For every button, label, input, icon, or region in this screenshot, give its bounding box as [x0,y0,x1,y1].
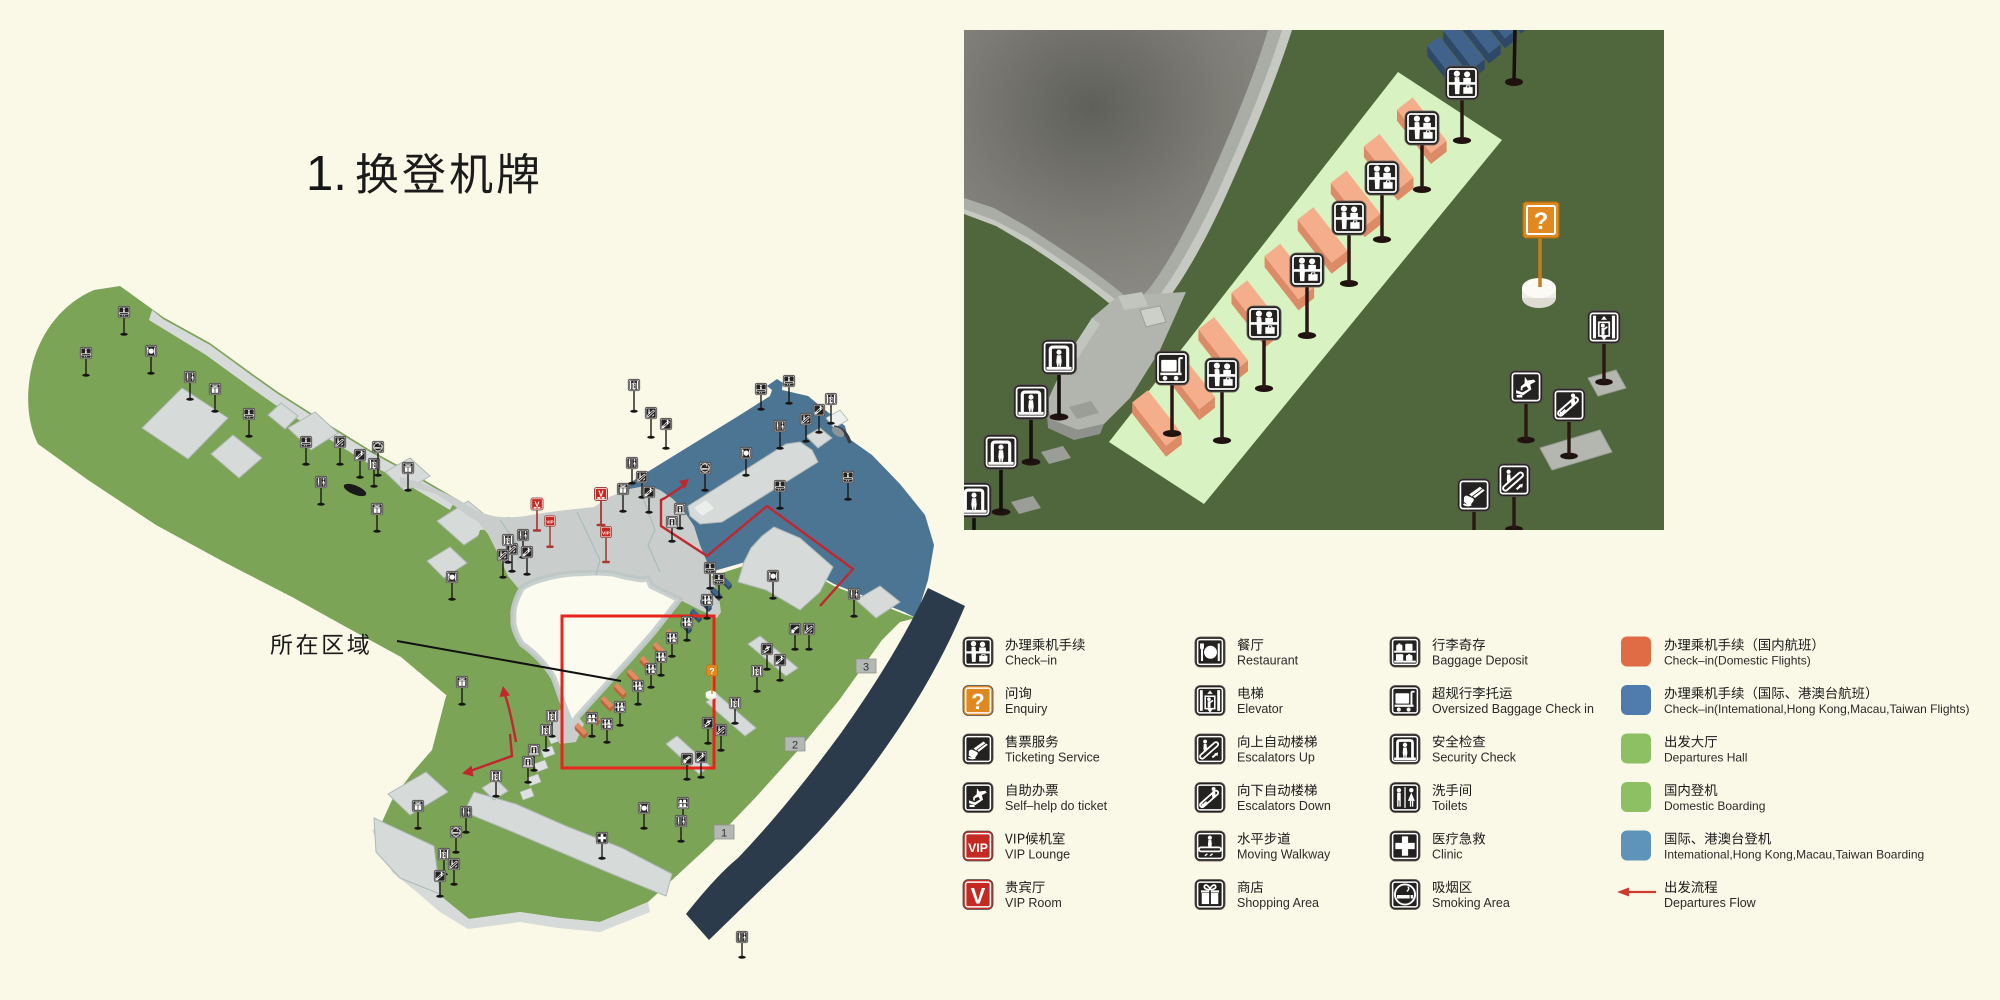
svg-text:2: 2 [792,740,798,752]
svg-text:Clinic: Clinic [1432,848,1463,862]
svg-text:Moving Walkway: Moving Walkway [1237,848,1331,862]
svg-text:Check–in(Intemational,Hong Kon: Check–in(Intemational,Hong Kong,Macau,Ta… [1664,702,1970,716]
svg-text:Smoking Area: Smoking Area [1432,896,1510,910]
svg-text:Oversized Baggage Check in: Oversized Baggage Check in [1432,702,1594,716]
svg-text:Escalators Down: Escalators Down [1237,799,1331,813]
svg-text:Departures Flow: Departures Flow [1664,896,1757,910]
svg-text:Domestic Boarding: Domestic Boarding [1664,799,1765,813]
svg-text:Baggage Deposit: Baggage Deposit [1432,654,1528,668]
svg-text:1: 1 [721,828,727,840]
svg-text:?: ? [709,666,714,676]
svg-text:Check–in: Check–in [1005,654,1057,668]
svg-text:Intemational,Hong Kong,Macau,T: Intemational,Hong Kong,Macau,Taiwan Boar… [1664,848,1924,862]
svg-text:Security Check: Security Check [1432,751,1517,765]
svg-text:VIP Room: VIP Room [1005,896,1062,910]
svg-text:Escalators Up: Escalators Up [1237,751,1315,765]
svg-text:Restaurant: Restaurant [1237,654,1299,668]
svg-text:Self–help do ticket: Self–help do ticket [1005,799,1108,813]
svg-text:Check–in(Domestic Flights): Check–in(Domestic Flights) [1664,654,1811,668]
svg-text:Shopping Area: Shopping Area [1237,896,1319,910]
svg-text:Toilets: Toilets [1432,799,1467,813]
svg-text:1.: 1. [306,147,347,201]
svg-text:Departures Hall: Departures Hall [1664,751,1747,765]
svg-text:Enquiry: Enquiry [1005,702,1048,716]
svg-text:?: ? [1534,208,1549,235]
svg-text:Ticketing Service: Ticketing Service [1005,751,1100,765]
svg-text:3: 3 [863,662,869,674]
svg-text:Elevator: Elevator [1237,702,1283,716]
svg-text:VIP Lounge: VIP Lounge [1005,848,1070,862]
